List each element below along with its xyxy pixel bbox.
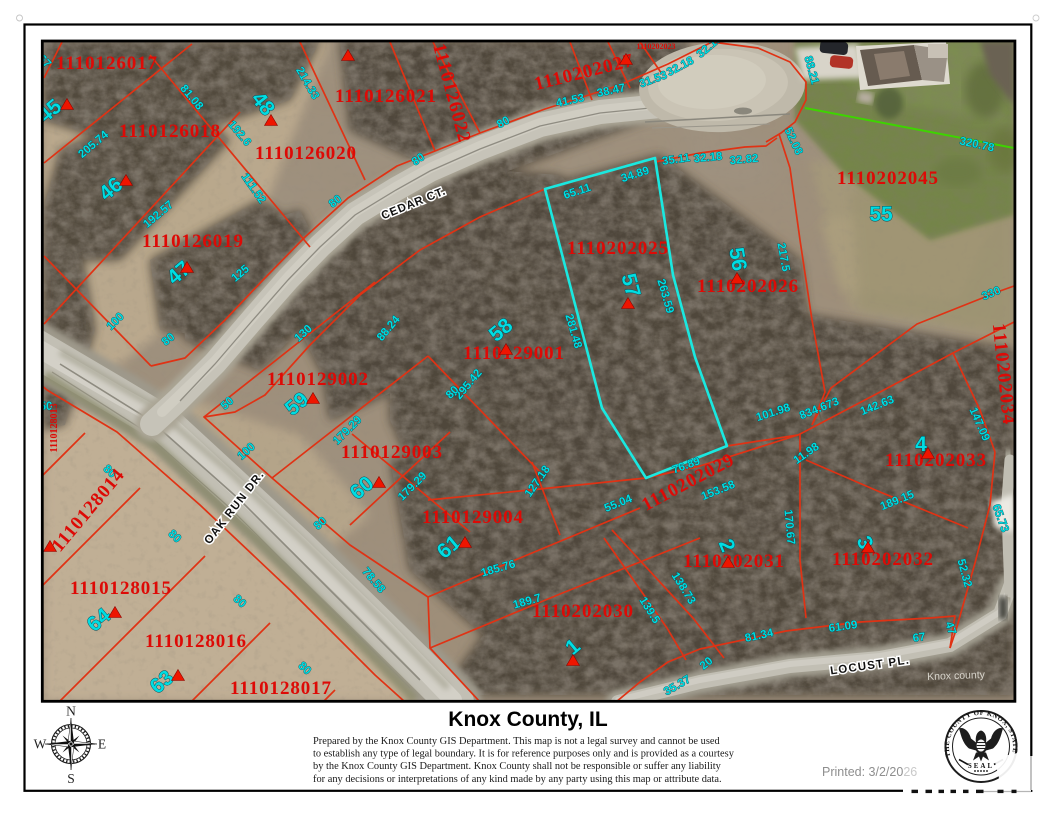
svg-text:1110129001: 1110129001 (463, 343, 565, 364)
svg-text:1110126020: 1110126020 (255, 143, 357, 164)
svg-text:1110126021: 1110126021 (335, 86, 437, 107)
svg-text:N: N (66, 704, 76, 719)
svg-text:1110202045: 1110202045 (837, 168, 939, 189)
svg-text:for any decisions or interpret: for any decisions or interpretations of … (313, 774, 722, 785)
svg-text:Prepared by the Knox County GI: Prepared by the Knox County GIS Departme… (313, 736, 720, 747)
svg-text:1110202026: 1110202026 (697, 276, 799, 297)
svg-text:SEAL: SEAL (968, 762, 994, 770)
svg-text:32.82: 32.82 (729, 153, 759, 167)
svg-text:1110129003: 1110129003 (341, 442, 443, 463)
svg-text:56: 56 (724, 246, 751, 273)
svg-text:1110126018: 1110126018 (119, 121, 221, 142)
svg-text:1110202032: 1110202032 (832, 549, 934, 570)
svg-text:1110126017: 1110126017 (56, 53, 158, 74)
svg-text:1110202031: 1110202031 (683, 551, 785, 572)
svg-text:1110128017: 1110128017 (230, 678, 332, 699)
svg-text:1110129004: 1110129004 (422, 507, 524, 528)
svg-text:1110128015: 1110128015 (70, 578, 172, 599)
svg-text:S: S (67, 771, 75, 786)
svg-text:Printed: 3/2/2026: Printed: 3/2/2026 (822, 765, 917, 779)
svg-text:32.18: 32.18 (693, 151, 723, 166)
svg-text:1110202030: 1110202030 (532, 601, 634, 622)
svg-text:55: 55 (869, 203, 893, 226)
svg-text:W: W (34, 737, 47, 752)
svg-text:1110128016: 1110128016 (145, 631, 247, 652)
svg-text:1110129002: 1110129002 (267, 369, 369, 390)
svg-text:1110202033: 1110202033 (885, 450, 987, 471)
svg-text:1110128013: 1110128013 (49, 404, 60, 453)
svg-text:to establish any type of legal: to establish any type of legal boundary.… (313, 749, 735, 760)
svg-text:Knox County, IL: Knox County, IL (448, 708, 608, 731)
svg-text:Knox county: Knox county (927, 669, 986, 683)
svg-text:1110202023: 1110202023 (636, 42, 675, 51)
svg-text:E: E (98, 737, 106, 752)
svg-text:1110126019: 1110126019 (142, 231, 244, 252)
svg-text:67: 67 (912, 631, 926, 645)
svg-text:1110202025: 1110202025 (567, 238, 669, 259)
svg-text:by the Knox County GIS Departm: by the Knox County GIS Department. Knox … (313, 761, 722, 772)
